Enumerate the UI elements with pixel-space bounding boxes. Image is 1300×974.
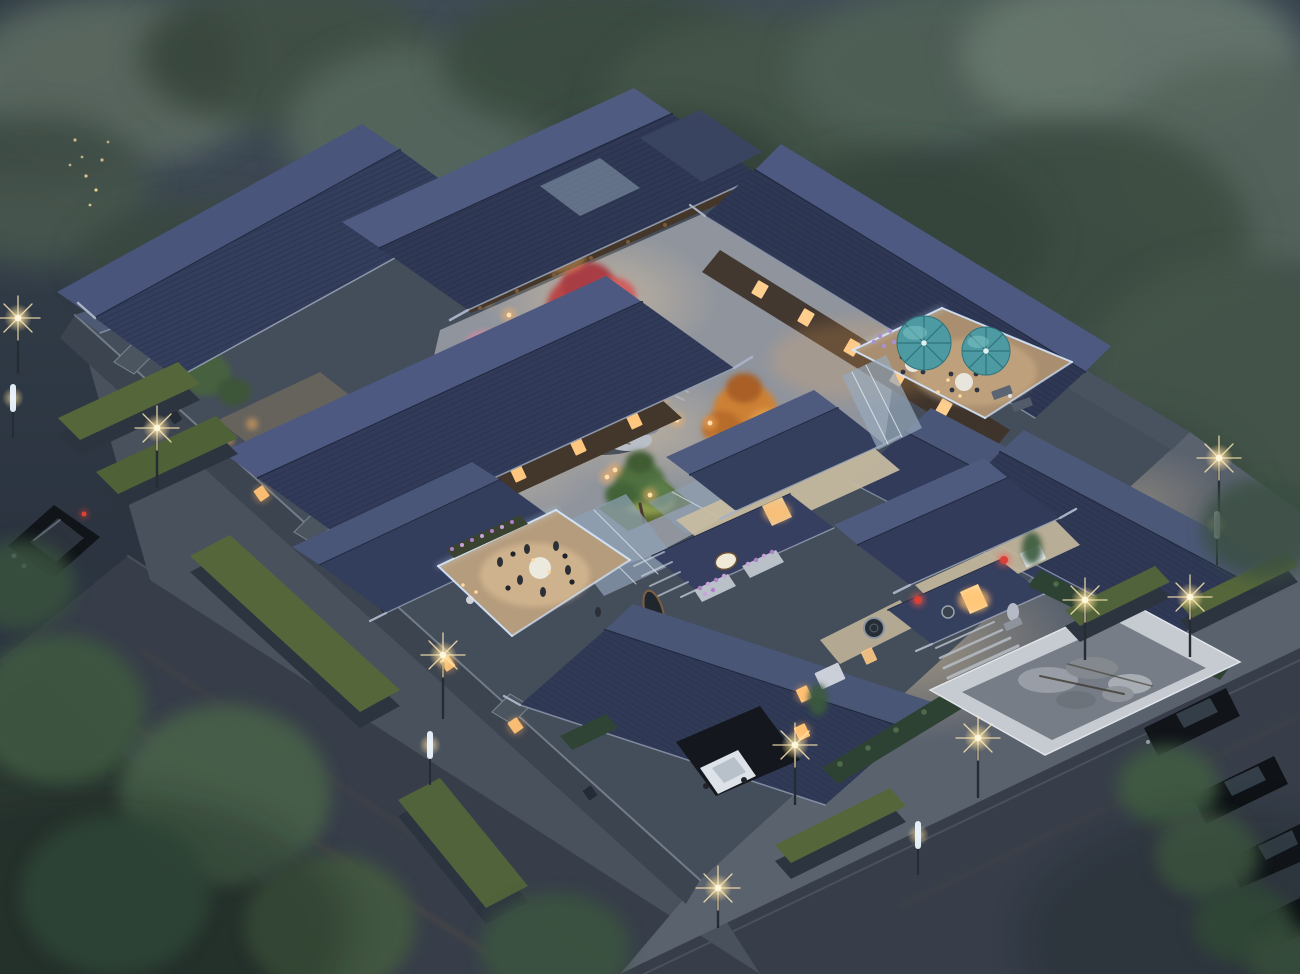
bonsai-pine bbox=[626, 451, 654, 473]
lavender bbox=[892, 340, 896, 344]
hedges-2 bbox=[865, 745, 871, 751]
figure-on-stairs bbox=[595, 607, 601, 617]
column bbox=[626, 240, 630, 244]
inner-gate-25 bbox=[770, 550, 774, 554]
wheel bbox=[741, 777, 747, 783]
garden-lantern bbox=[605, 475, 610, 480]
inner-gate-17 bbox=[714, 578, 718, 582]
diner-figure bbox=[497, 557, 503, 567]
hedges-3 bbox=[893, 727, 899, 733]
dining-terrace-12 bbox=[490, 529, 494, 533]
ne-terrace-32 bbox=[1008, 394, 1012, 398]
dining-terrace-13 bbox=[500, 525, 504, 529]
candle bbox=[474, 590, 478, 594]
inner-gate-12 bbox=[763, 502, 791, 522]
scene-root bbox=[0, 0, 1300, 974]
inner-gate-24 bbox=[762, 554, 766, 558]
diner-figure bbox=[524, 544, 530, 554]
column bbox=[478, 306, 482, 310]
chair bbox=[950, 388, 955, 393]
courtyard-scene-svg: Aerial dusk rendering of a traditional C… bbox=[0, 0, 1300, 974]
street-lamp bbox=[1187, 594, 1193, 600]
street-lamp bbox=[975, 735, 981, 741]
street-lamp bbox=[440, 652, 446, 658]
street-lamp bbox=[15, 315, 21, 321]
inner-gate-16 bbox=[706, 582, 710, 586]
sw-wall-12 bbox=[507, 717, 525, 735]
chair bbox=[510, 551, 515, 556]
street-lamp bbox=[1216, 455, 1222, 461]
inner-gate-22 bbox=[746, 562, 750, 566]
dining-terrace-11 bbox=[480, 534, 484, 538]
wheel bbox=[703, 783, 709, 789]
umbrella-hub bbox=[983, 348, 989, 354]
street-lamp bbox=[715, 885, 721, 891]
inner-gate-19 bbox=[703, 592, 707, 596]
cushion bbox=[466, 596, 474, 604]
inner-gate-20 bbox=[711, 588, 715, 592]
lavender bbox=[888, 329, 892, 333]
street-lamp bbox=[154, 425, 160, 431]
chair bbox=[949, 372, 954, 377]
column bbox=[589, 256, 593, 260]
inner-gate-18 bbox=[722, 574, 726, 578]
firefly bbox=[89, 204, 92, 207]
red-lantern bbox=[1000, 556, 1008, 564]
candle bbox=[936, 390, 940, 394]
garden-lantern bbox=[648, 493, 653, 498]
lavender bbox=[878, 334, 882, 338]
courtyard-tree bbox=[217, 378, 251, 406]
chair bbox=[975, 388, 980, 393]
pool-rock bbox=[1056, 691, 1096, 709]
candle bbox=[531, 558, 535, 562]
round-window bbox=[864, 618, 884, 638]
lavender bbox=[882, 344, 886, 348]
inner-gate-23 bbox=[754, 558, 758, 562]
diner-figure bbox=[565, 565, 571, 575]
tube-lamp bbox=[10, 384, 16, 412]
candle bbox=[461, 583, 465, 587]
chair bbox=[562, 553, 567, 558]
dining-terrace-10 bbox=[470, 538, 474, 542]
diner-figure bbox=[540, 587, 546, 597]
dining-terrace-9 bbox=[460, 543, 464, 547]
column bbox=[515, 289, 519, 293]
firefly bbox=[94, 188, 97, 191]
tube-lamp bbox=[427, 731, 433, 759]
dining-terrace-8 bbox=[450, 547, 454, 551]
hedges-1 bbox=[837, 761, 843, 767]
column bbox=[552, 273, 556, 277]
garden-lantern bbox=[708, 421, 713, 426]
diner-figure bbox=[517, 575, 523, 585]
chair bbox=[569, 579, 574, 584]
street-lamp bbox=[792, 742, 798, 748]
architectural-render: Aerial dusk rendering of a traditional C… bbox=[0, 0, 1300, 974]
autumn-tree bbox=[726, 373, 762, 403]
umbrella-highlight bbox=[903, 326, 927, 340]
main-gate-14 bbox=[958, 588, 990, 612]
street-lamp bbox=[1082, 597, 1088, 603]
bamboo bbox=[808, 684, 828, 716]
umbrella-highlight bbox=[967, 336, 989, 348]
chair bbox=[505, 585, 510, 590]
cars-9 bbox=[1146, 740, 1150, 744]
candle bbox=[958, 394, 962, 398]
dining-terrace-14 bbox=[510, 520, 514, 524]
terrace-table bbox=[955, 373, 973, 391]
diner-figure bbox=[553, 541, 559, 551]
candle bbox=[547, 570, 551, 574]
red-lantern bbox=[914, 596, 922, 604]
bamboo bbox=[1022, 532, 1042, 564]
candle bbox=[946, 378, 950, 382]
hedges-4 bbox=[921, 709, 927, 715]
chair bbox=[901, 370, 906, 375]
lavender bbox=[872, 340, 876, 344]
cars-6 bbox=[79, 509, 89, 519]
hedges-8 bbox=[1053, 581, 1059, 587]
pool-rock bbox=[1102, 686, 1134, 702]
umbrella-hub bbox=[921, 340, 927, 346]
column bbox=[663, 223, 667, 227]
garden-lantern bbox=[507, 313, 512, 318]
sw-wall-9 bbox=[253, 485, 271, 503]
tube-lamp bbox=[915, 821, 921, 849]
garden-lantern bbox=[613, 468, 618, 473]
drum-stone bbox=[942, 606, 954, 618]
inner-gate-15 bbox=[698, 586, 702, 590]
inner-pockets-6 bbox=[246, 418, 258, 430]
